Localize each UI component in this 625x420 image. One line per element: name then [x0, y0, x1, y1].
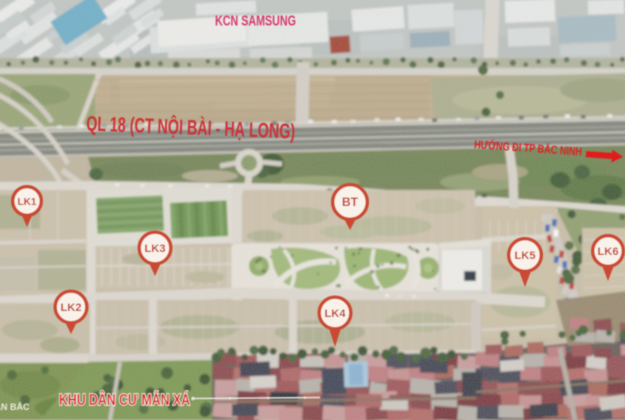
svg-text:KHU DÂN CƯ MẪN XÁ: KHU DÂN CƯ MẪN XÁ [59, 391, 190, 409]
svg-text:LK4: LK4 [325, 308, 347, 320]
svg-text:LK5: LK5 [515, 250, 536, 262]
svg-text:BT: BT [342, 197, 358, 209]
svg-text:KCN SAMSUNG: KCN SAMSUNG [215, 14, 296, 30]
svg-text:LK1: LK1 [18, 196, 37, 208]
svg-text:LK2: LK2 [61, 302, 82, 314]
svg-text:ĐT VÂN BẮC: ĐT VÂN BẮC [0, 401, 30, 412]
svg-text:LK6: LK6 [598, 246, 619, 258]
svg-text:LK3: LK3 [145, 243, 166, 255]
